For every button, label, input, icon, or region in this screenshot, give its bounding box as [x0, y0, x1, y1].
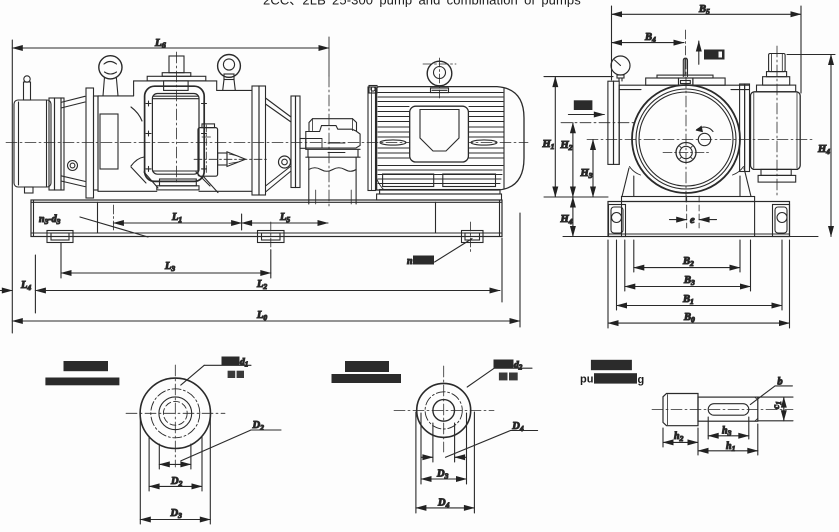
- svg-text:d2: d2: [514, 361, 523, 372]
- svg-text:B2: B2: [682, 256, 694, 268]
- svg-text:L4: L4: [20, 280, 31, 292]
- svg-text:B4: B4: [644, 32, 656, 44]
- svg-text:B3: B3: [683, 275, 695, 287]
- svg-text:2CC、2LB 25-300 pump and combin: 2CC、2LB 25-300 pump and combination of p…: [263, 0, 581, 8]
- svg-text:L3: L3: [164, 261, 175, 273]
- svg-text:pu: pu: [580, 374, 593, 386]
- svg-text:D4: D4: [437, 498, 450, 510]
- svg-text:h1: h1: [726, 441, 735, 453]
- svg-text:H4: H4: [560, 214, 573, 226]
- svg-text:h2: h2: [674, 431, 684, 443]
- svg-text:B1: B1: [682, 294, 694, 306]
- svg-text:B5: B5: [698, 4, 710, 16]
- svg-text:n: n: [407, 256, 413, 267]
- svg-text:h3: h3: [722, 426, 732, 438]
- svg-text:D4: D4: [511, 421, 524, 433]
- svg-text:L6: L6: [154, 37, 166, 50]
- svg-text:L5: L5: [279, 212, 290, 224]
- svg-text:H3: H3: [580, 168, 593, 180]
- svg-text:e: e: [690, 215, 695, 226]
- svg-text:H2: H2: [560, 140, 573, 152]
- svg-text:L2: L2: [256, 279, 267, 291]
- svg-text:H4: H4: [817, 144, 830, 156]
- svg-text:c1: c1: [772, 401, 783, 409]
- svg-text:D3: D3: [436, 469, 449, 481]
- svg-text:H1: H1: [542, 139, 555, 151]
- svg-text:n3-d3: n3-d3: [39, 214, 61, 226]
- svg-text:D3: D3: [170, 508, 183, 520]
- svg-text:g: g: [638, 374, 645, 386]
- svg-text:d1: d1: [240, 358, 248, 369]
- svg-text:D2: D2: [170, 476, 183, 488]
- svg-text:L0: L0: [256, 310, 267, 322]
- svg-text:L1: L1: [171, 212, 182, 224]
- svg-text:B0: B0: [683, 312, 695, 324]
